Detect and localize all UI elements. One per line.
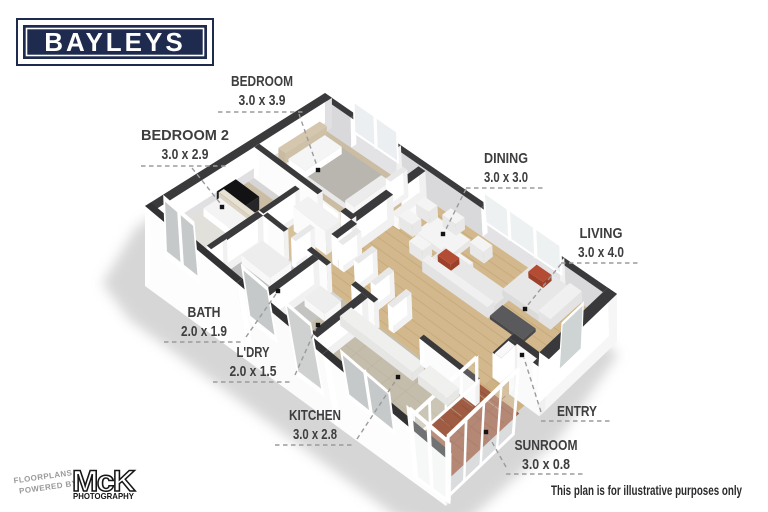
svg-text:ENTRY: ENTRY <box>557 403 597 420</box>
svg-text:DINING: DINING <box>484 150 528 167</box>
svg-text:BATH: BATH <box>188 304 221 321</box>
svg-text:BAYLEYS: BAYLEYS <box>44 27 185 57</box>
svg-text:KITCHEN: KITCHEN <box>289 407 341 424</box>
svg-text:LIVING: LIVING <box>580 225 623 242</box>
svg-text:BEDROOM 2: BEDROOM 2 <box>141 127 229 144</box>
svg-text:L'DRY: L'DRY <box>237 344 270 361</box>
svg-text:SUNROOM: SUNROOM <box>515 437 578 454</box>
svg-text:3.0 x 2.9: 3.0 x 2.9 <box>162 146 209 163</box>
svg-text:3.0 x 2.8: 3.0 x 2.8 <box>293 426 337 443</box>
svg-text:BEDROOM: BEDROOM <box>231 73 293 90</box>
svg-text:2.0 x 1.9: 2.0 x 1.9 <box>181 323 227 340</box>
svg-text:PHOTOGRAPHY: PHOTOGRAPHY <box>73 492 135 501</box>
svg-text:This plan is for illustrative: This plan is for illustrative purposes o… <box>551 483 742 498</box>
svg-text:3.0 x 3.9: 3.0 x 3.9 <box>239 92 286 109</box>
svg-text:3.0 x 0.8: 3.0 x 0.8 <box>522 456 570 473</box>
svg-text:3.0 x 3.0: 3.0 x 3.0 <box>484 169 528 186</box>
svg-text:3.0 x 4.0: 3.0 x 4.0 <box>578 244 624 261</box>
svg-text:2.0 x 1.5: 2.0 x 1.5 <box>230 363 277 380</box>
